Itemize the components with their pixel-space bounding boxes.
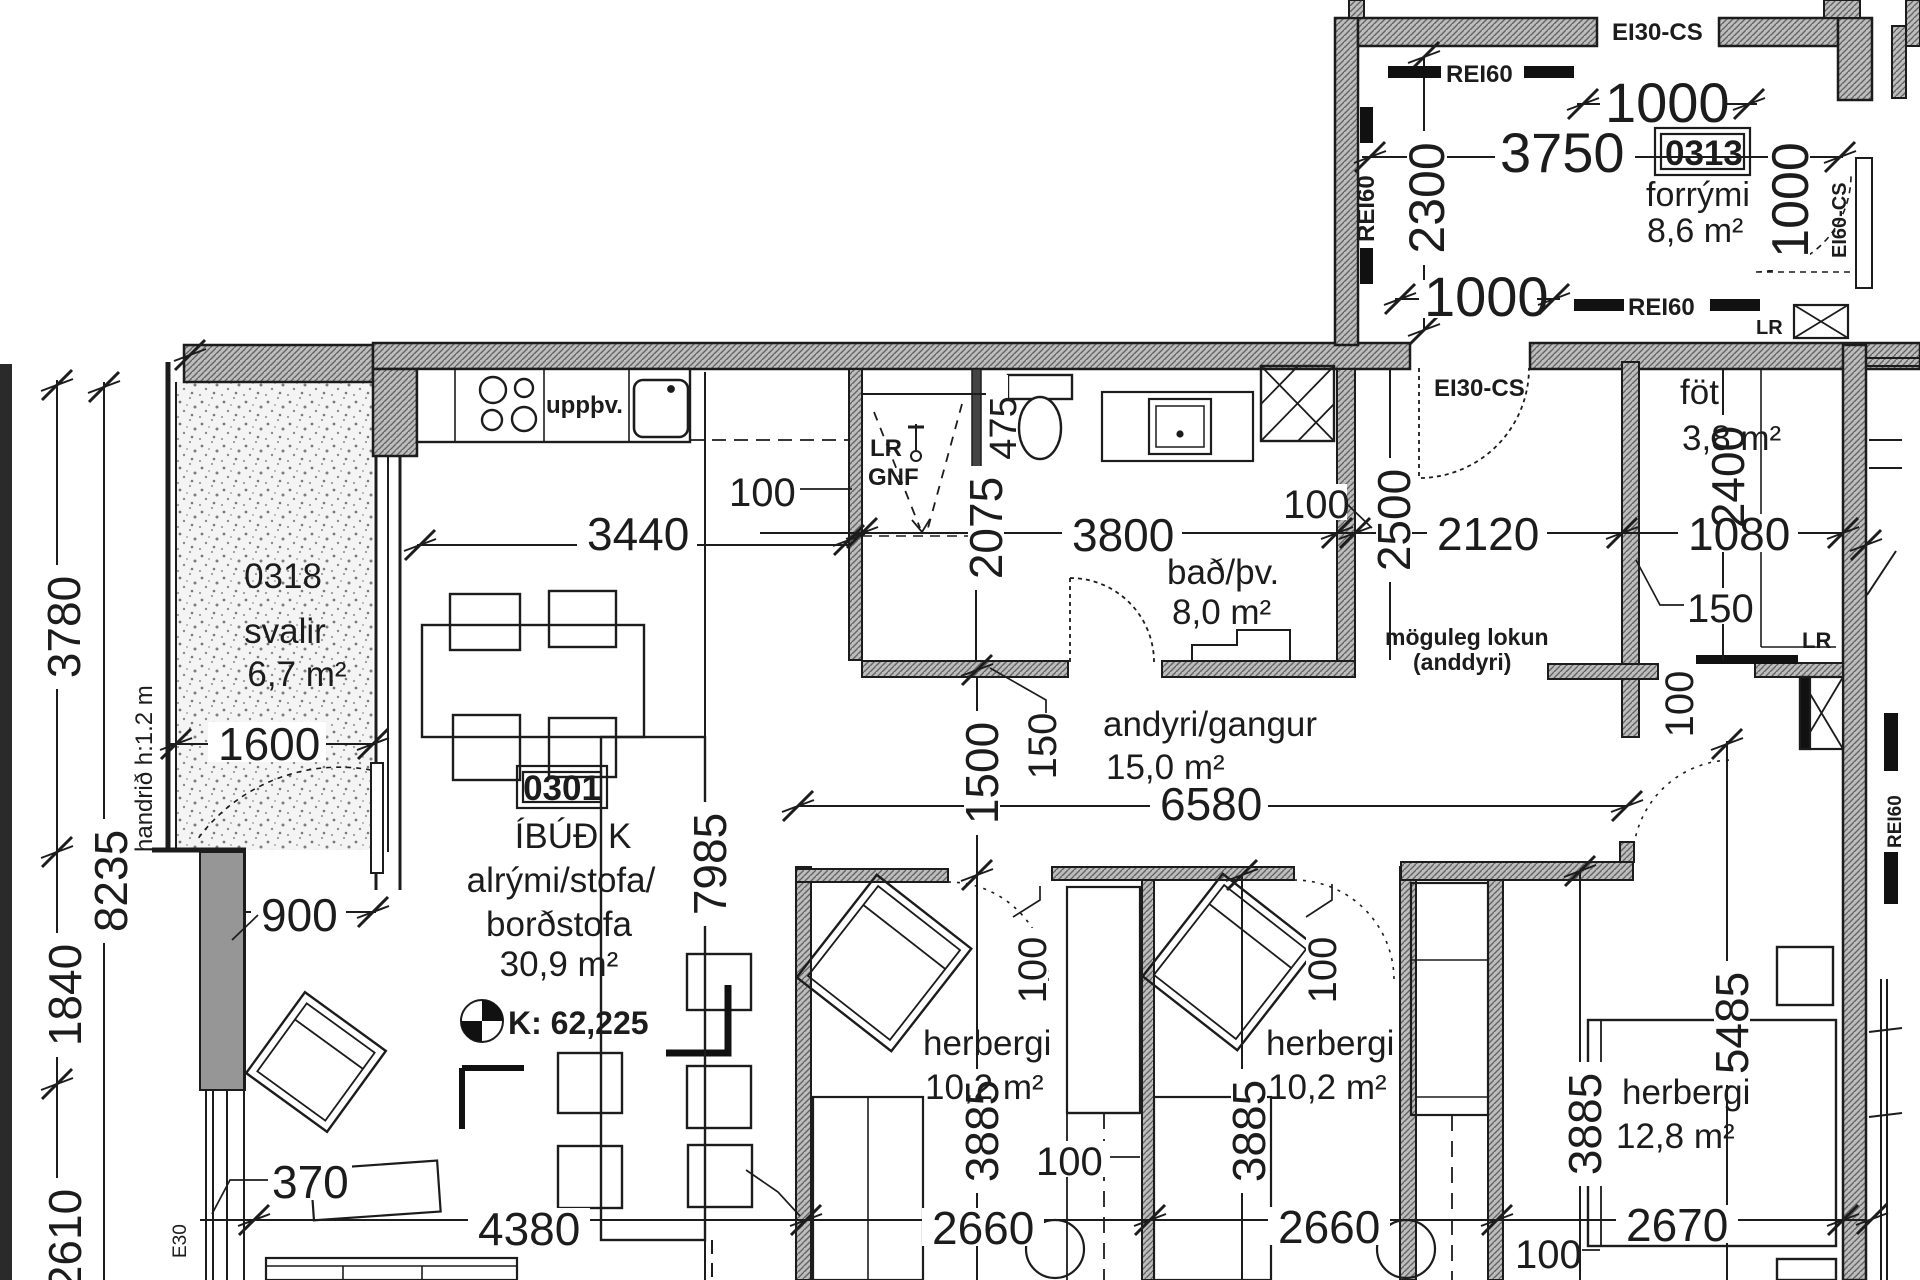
svg-text:2400: 2400 — [1702, 426, 1754, 528]
svg-text:1840: 1840 — [39, 944, 91, 1046]
svg-text:2120: 2120 — [1437, 508, 1539, 560]
svg-text:2660: 2660 — [932, 1202, 1034, 1254]
svg-text:2500: 2500 — [1368, 469, 1420, 571]
svg-text:föt: föt — [1680, 373, 1719, 412]
svg-text:3800: 3800 — [1072, 509, 1174, 561]
svg-text:100: 100 — [1301, 937, 1345, 1004]
svg-text:borðstofa: borðstofa — [486, 905, 632, 944]
svg-text:100: 100 — [1011, 937, 1055, 1004]
svg-text:4380: 4380 — [478, 1203, 580, 1255]
svg-text:12,8 m²: 12,8 m² — [1616, 1117, 1735, 1156]
svg-text:LR: LR — [870, 435, 902, 462]
svg-text:0318: 0318 — [244, 557, 322, 596]
svg-text:2610: 2610 — [39, 1189, 91, 1280]
svg-text:5485: 5485 — [1706, 972, 1758, 1074]
svg-text:herbergi: herbergi — [1622, 1073, 1750, 1112]
svg-text:7985: 7985 — [684, 813, 736, 915]
svg-text:3885: 3885 — [1223, 1080, 1275, 1182]
svg-text:LR: LR — [1802, 628, 1831, 653]
svg-text:K: 62,225: K: 62,225 — [508, 1005, 649, 1041]
svg-text:6580: 6580 — [1160, 778, 1262, 830]
svg-text:6,7 m²: 6,7 m² — [247, 655, 346, 694]
svg-text:150: 150 — [1021, 713, 1065, 780]
svg-text:8,6 m²: 8,6 m² — [1647, 212, 1743, 250]
svg-text:10,2 m²: 10,2 m² — [1268, 1068, 1387, 1107]
svg-text:2300: 2300 — [1399, 142, 1455, 253]
svg-text:EI60-CS: EI60-CS — [1829, 182, 1851, 258]
svg-text:475: 475 — [983, 396, 1025, 459]
svg-text:handrið h:1.2 m: handrið h:1.2 m — [131, 685, 158, 852]
svg-text:forrými: forrými — [1646, 176, 1750, 214]
svg-text:LR: LR — [1756, 317, 1783, 339]
svg-text:1000: 1000 — [1605, 71, 1730, 134]
svg-text:0313: 0313 — [1665, 134, 1743, 173]
svg-text:EI30-CS: EI30-CS — [1612, 19, 1703, 46]
svg-text:100: 100 — [1283, 483, 1350, 527]
svg-text:900: 900 — [261, 889, 338, 941]
svg-text:2075: 2075 — [960, 477, 1012, 579]
svg-text:3440: 3440 — [587, 508, 689, 560]
svg-text:uppþv.: uppþv. — [546, 392, 623, 419]
svg-text:8,0 m²: 8,0 m² — [1172, 593, 1271, 632]
svg-text:E30: E30 — [170, 1224, 191, 1258]
svg-text:REI60: REI60 — [1885, 795, 1906, 848]
svg-text:30,9 m²: 30,9 m² — [500, 945, 619, 984]
svg-text:3885: 3885 — [1559, 1073, 1611, 1175]
svg-text:3780: 3780 — [38, 576, 90, 678]
svg-text:100: 100 — [1515, 1233, 1582, 1277]
svg-text:bað/þv.: bað/þv. — [1167, 553, 1279, 592]
svg-text:GNF: GNF — [868, 464, 919, 491]
svg-text:8235: 8235 — [85, 830, 137, 932]
svg-text:1000: 1000 — [1424, 265, 1549, 328]
svg-text:100: 100 — [1658, 671, 1702, 738]
svg-text:REI60: REI60 — [1353, 175, 1380, 242]
svg-text:1500: 1500 — [956, 722, 1008, 824]
svg-text:andyri/gangur: andyri/gangur — [1103, 705, 1317, 744]
svg-text:370: 370 — [272, 1156, 349, 1208]
svg-text:alrými/stofa/: alrými/stofa/ — [467, 861, 656, 900]
svg-text:ÍBÚÐ K: ÍBÚÐ K — [515, 817, 632, 856]
svg-text:2660: 2660 — [1278, 1201, 1380, 1253]
svg-text:(anddyri): (anddyri) — [1413, 649, 1511, 675]
svg-text:1600: 1600 — [218, 718, 320, 770]
svg-text:EI30-CS: EI30-CS — [1434, 375, 1525, 402]
svg-text:REI60: REI60 — [1628, 294, 1695, 321]
svg-text:100: 100 — [1036, 1140, 1103, 1184]
svg-text:150: 150 — [1687, 587, 1754, 631]
svg-text:svalir: svalir — [244, 612, 326, 651]
svg-text:herbergi: herbergi — [923, 1024, 1051, 1063]
svg-text:0301: 0301 — [523, 769, 601, 808]
svg-text:herbergi: herbergi — [1266, 1024, 1394, 1063]
svg-text:1000: 1000 — [1762, 142, 1820, 258]
svg-text:2670: 2670 — [1626, 1199, 1728, 1251]
svg-text:möguleg lokun: möguleg lokun — [1385, 624, 1549, 650]
svg-text:100: 100 — [729, 471, 796, 515]
svg-text:3885: 3885 — [956, 1080, 1008, 1182]
svg-text:REI60: REI60 — [1446, 61, 1513, 88]
